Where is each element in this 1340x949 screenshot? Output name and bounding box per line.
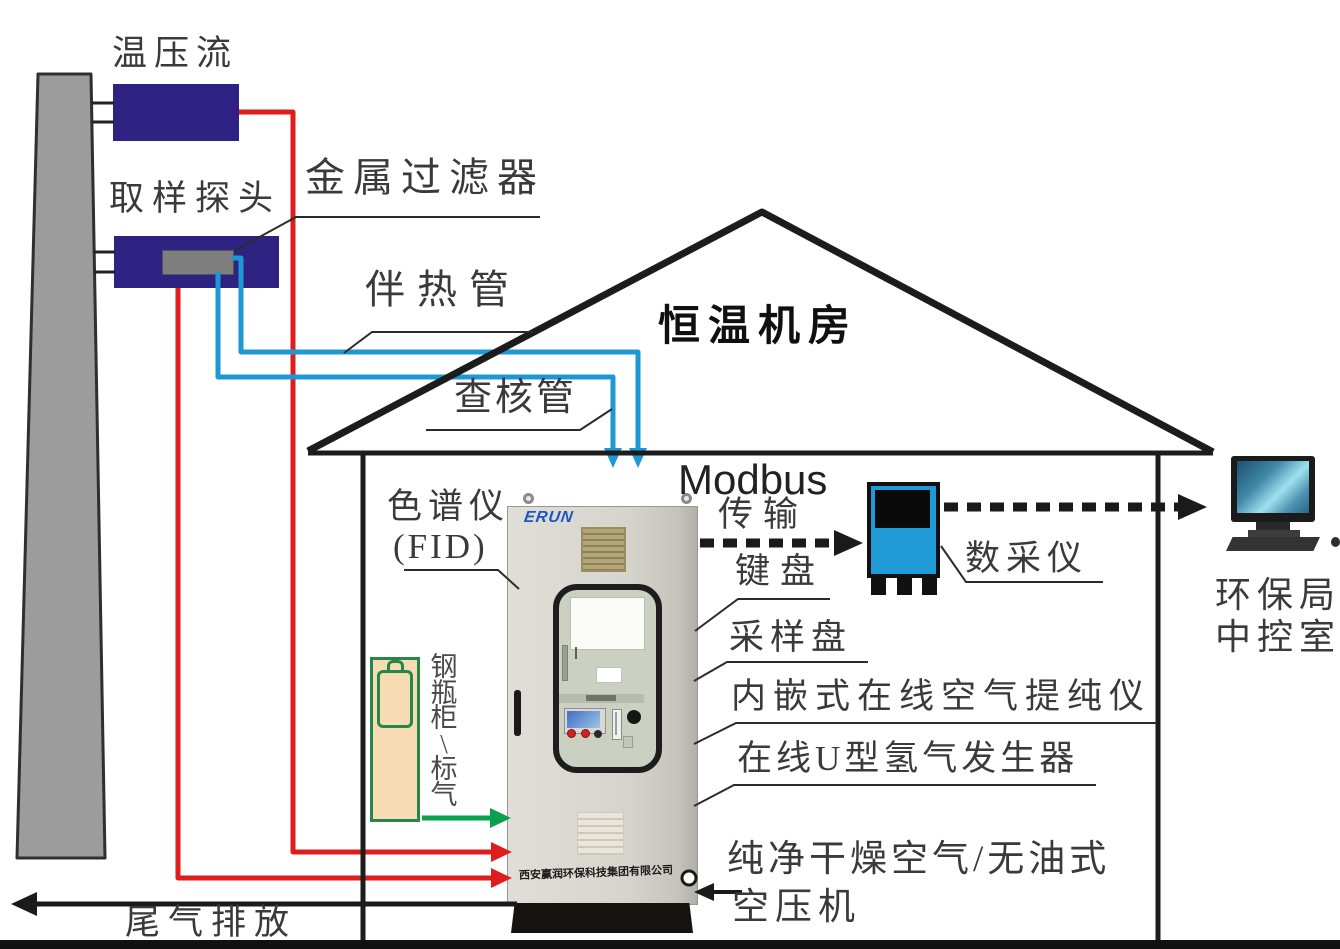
touchscreen: [567, 711, 600, 728]
lifting-eyebolt-left: [523, 493, 534, 504]
small-tag: [623, 736, 633, 748]
cabinet-door-window: [553, 584, 662, 773]
gas-cylinder-valve: [387, 660, 404, 672]
label-central-control-room: 中控室: [1215, 619, 1340, 657]
exhaust-arrowhead: [11, 892, 37, 916]
label-transmission: 传输: [718, 497, 808, 534]
dashed-arrowhead-1: [834, 530, 863, 556]
mouse-device: [1331, 537, 1340, 547]
label-compressor: 空压机: [732, 889, 861, 928]
dashed-arrowhead-2: [1178, 494, 1207, 520]
gas-cylinder: [377, 670, 413, 728]
label-cylinder-cabinet: 钢 瓶 柜 \ 标 气: [429, 655, 459, 808]
label-keyboard: 键盘: [735, 554, 825, 591]
label-heated-tube: 伴热管: [365, 269, 521, 311]
chimney-stack: [17, 74, 105, 858]
cems-diagram: ERUN 西安赢润环保科技集团有限公司 温压流 取样探头 金属过滤器 伴热管 查…: [0, 0, 1340, 949]
keyboard-device: [1226, 537, 1320, 551]
cabinet-base: [511, 903, 693, 933]
red-button-2: [581, 729, 590, 738]
label-epa-bureau: 环保局: [1215, 577, 1340, 615]
door-latch-slot: [562, 645, 568, 681]
monitor-base: [1248, 530, 1300, 537]
cabinet-bottom-vent: [577, 812, 624, 855]
label-check-tube: 查核管: [454, 379, 577, 419]
label-fid: (FID): [393, 529, 488, 566]
flow-meter: [612, 709, 622, 740]
inner-label-plate: [596, 667, 622, 683]
red-button-1: [567, 729, 576, 738]
analyzer-screen: [570, 597, 645, 650]
metal-filter-block: [162, 250, 234, 275]
label-chromatograph: 色谱仪: [387, 489, 510, 526]
flow-meter-scale: [615, 712, 617, 735]
separator-nameplate: [586, 695, 616, 701]
black-button: [594, 730, 602, 738]
daq-screen: [875, 490, 930, 528]
door-handle: [514, 690, 521, 736]
label-constant-temp-room: 恒温机房: [658, 304, 858, 348]
control-knob: [627, 710, 641, 724]
label-temp-pressure-flow: 温压流: [112, 36, 238, 73]
label-metal-filter: 金属过滤器: [305, 157, 545, 199]
label-daq: 数采仪: [965, 541, 1088, 578]
daq-leg: [922, 578, 937, 595]
temp-pressure-flow-sensor: [113, 84, 239, 141]
label-air-purifier: 内嵌式在线空气提纯仪: [731, 679, 1151, 716]
label-h2-generator: 在线U型氢气发生器: [737, 741, 1078, 778]
monitor-screen: [1237, 461, 1309, 513]
daq-leg: [897, 578, 912, 595]
label-sampling-probe: 取样探头: [109, 181, 281, 218]
erun-logo: ERUN: [523, 510, 575, 527]
daq-leg: [871, 578, 886, 595]
door-hinge-mark: [575, 647, 577, 659]
label-dry-air: 纯净干燥空气/无油式: [727, 841, 1110, 880]
blue-arrowhead-1: [629, 448, 647, 468]
blue-arrowhead-2: [604, 448, 622, 468]
label-sampling-plate: 采样盘: [729, 620, 852, 657]
cabinet-top-vent: [581, 527, 626, 572]
label-exhaust: 尾气排放: [125, 905, 297, 942]
